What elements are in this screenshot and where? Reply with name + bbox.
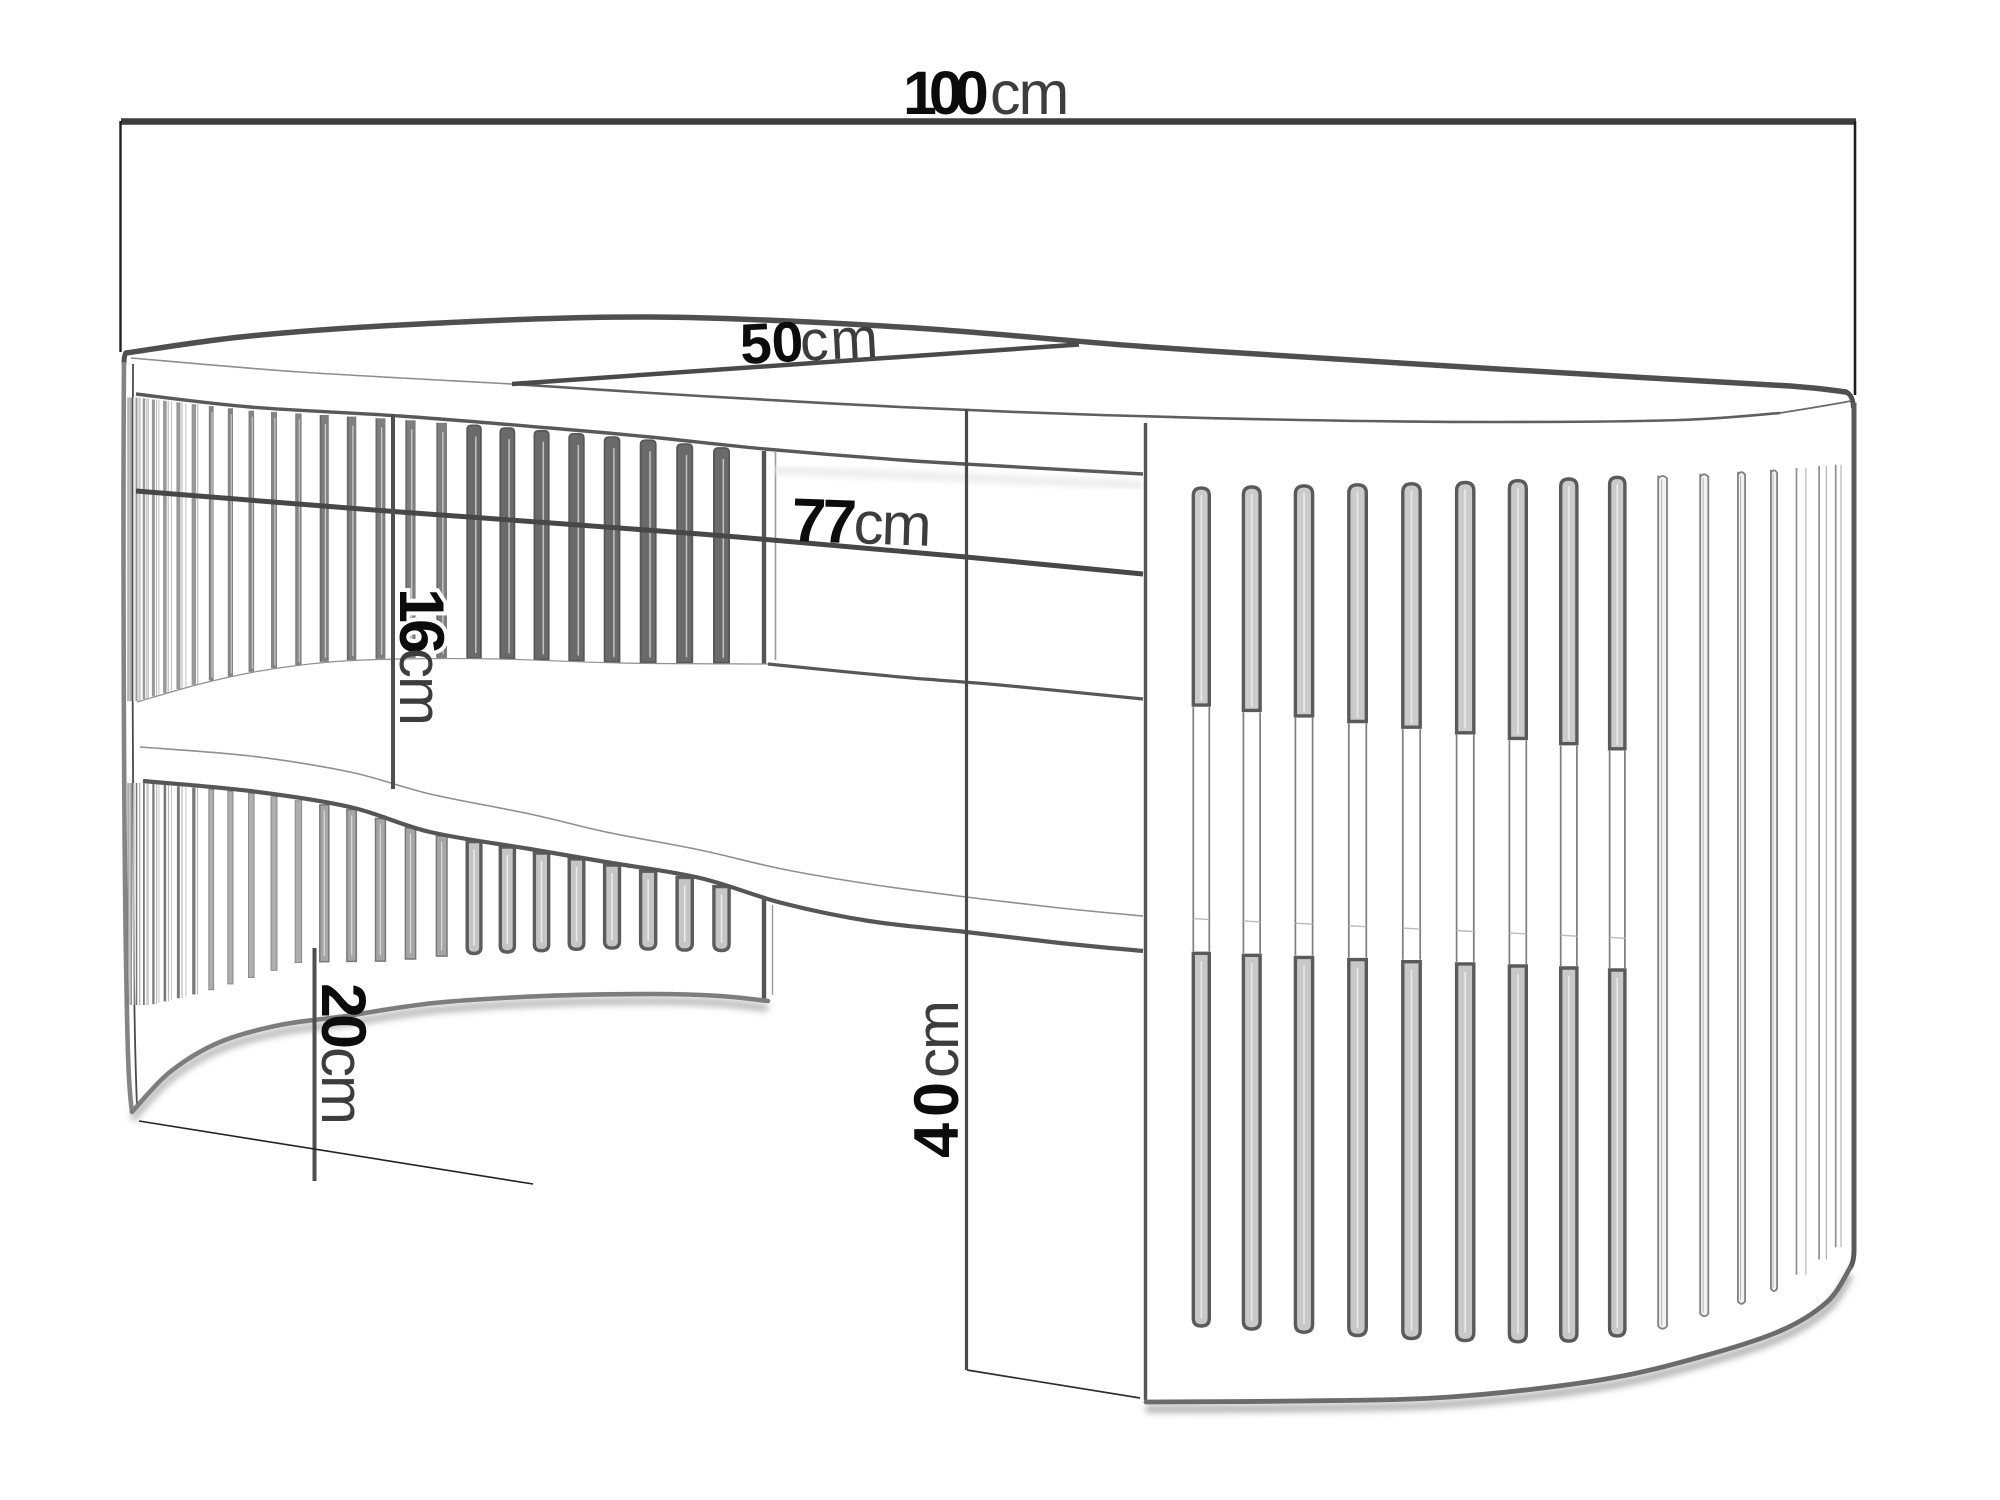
- svg-text:100: 100: [903, 59, 987, 127]
- svg-text:20: 20: [308, 983, 378, 1047]
- svg-text:cm: cm: [853, 489, 931, 559]
- svg-text:cm: cm: [904, 1002, 971, 1078]
- svg-text:40: 40: [902, 1076, 972, 1158]
- svg-text:77: 77: [791, 486, 856, 557]
- svg-text:cm: cm: [990, 59, 1067, 127]
- svg-text:cm: cm: [309, 1047, 376, 1123]
- svg-text:50: 50: [738, 310, 805, 377]
- svg-text:cm: cm: [387, 648, 454, 724]
- svg-text:cm: cm: [798, 306, 881, 374]
- svg-text:16: 16: [386, 588, 456, 652]
